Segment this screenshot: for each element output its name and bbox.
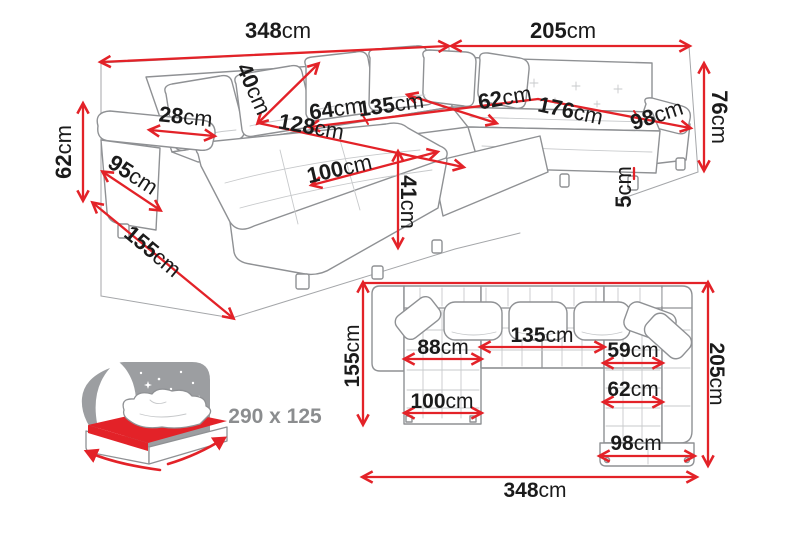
foot [685,458,690,463]
dim-label-plan-348: 348cm [503,479,566,502]
dim-label-plan-62: 62cm [607,378,658,401]
sleeping-area-size: 290 x 125 [228,405,322,428]
dim-label-76: 76cm [707,90,732,144]
leg [296,274,309,289]
dim-label-plan-88: 88cm [417,336,468,359]
pillow [444,302,502,340]
leg [560,174,569,187]
dim-label-205-back: 205cm [530,18,596,43]
dim-label-62-armrest: 62cm [51,125,76,179]
pillow [423,50,476,106]
plan-view: 155cm 88cm 135cm 59cm 205cm 62cm 100cm 9… [341,283,728,502]
diagram-canvas: 348cm 205cm 62cm 95cm 155cm 28cm 40cm 64… [0,0,800,533]
perspective-view: 348cm 205cm 62cm 95cm 155cm 28cm 40cm 64… [51,18,732,318]
dim-label-plan-98: 98cm [610,432,661,455]
furniture-dimension-diagram: 348cm 205cm 62cm 95cm 155cm 28cm 40cm 64… [0,0,800,533]
dim-label-41: 41cm [396,175,421,229]
foot [470,416,476,422]
dim-label-5: 5cm [611,166,636,208]
foot [406,416,412,422]
dim-label-plan-59: 59cm [607,339,658,362]
dim-label-plan-135: 135cm [510,324,573,347]
leg [432,240,442,253]
pillow [574,302,630,340]
sofa-bed-function-icon: 290 x 125 [60,354,322,470]
dim-label-plan-205: 205cm [705,342,728,405]
corner-front-face [432,136,548,216]
corner-sofa-drawing [97,46,690,289]
leg [372,266,383,279]
dim-label-348-back: 348cm [245,18,311,43]
foot [605,458,610,463]
dim-label-plan-100: 100cm [410,390,473,413]
leg [676,158,685,170]
plan-backrest-right [662,286,692,443]
dim-label-plan-155: 155cm [341,324,364,387]
